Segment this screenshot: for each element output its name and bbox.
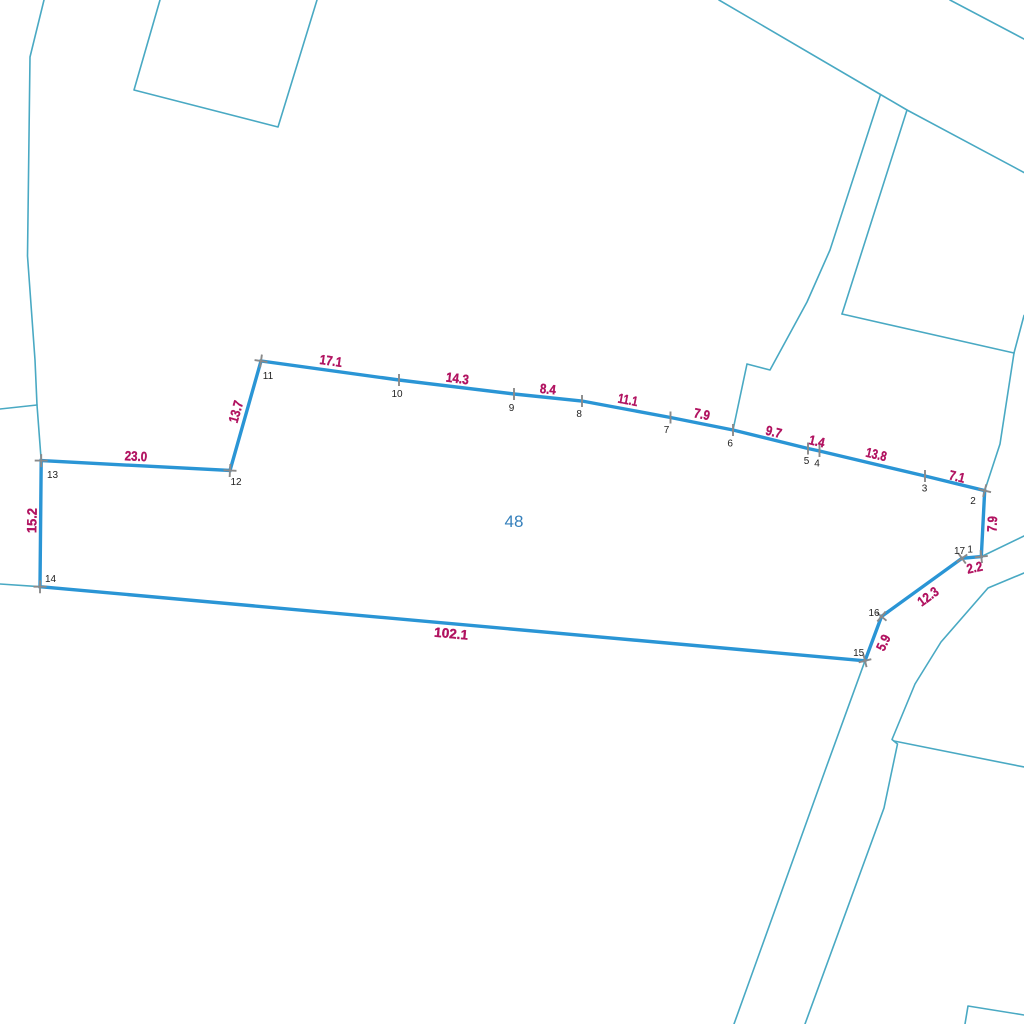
svg-text:8: 8	[576, 409, 582, 420]
svg-text:14: 14	[45, 574, 57, 585]
svg-text:102.1: 102.1	[434, 625, 470, 643]
svg-text:16: 16	[868, 608, 880, 619]
svg-text:8.4: 8.4	[539, 381, 557, 398]
svg-text:15.2: 15.2	[24, 508, 39, 533]
svg-text:17: 17	[954, 546, 966, 557]
svg-text:15: 15	[853, 648, 865, 659]
svg-text:17.1: 17.1	[319, 352, 344, 370]
svg-text:7.9: 7.9	[985, 516, 1001, 533]
svg-text:14.3: 14.3	[445, 370, 470, 388]
svg-text:12: 12	[230, 477, 242, 488]
svg-text:1: 1	[967, 545, 973, 556]
svg-text:7: 7	[664, 425, 670, 436]
svg-text:2: 2	[970, 496, 976, 507]
svg-text:48: 48	[505, 512, 524, 531]
svg-text:4: 4	[814, 459, 820, 470]
svg-text:6: 6	[727, 439, 733, 450]
svg-text:5: 5	[804, 456, 810, 467]
svg-text:10: 10	[391, 389, 403, 400]
svg-text:11: 11	[263, 371, 274, 382]
svg-text:23.0: 23.0	[124, 448, 147, 464]
svg-text:13: 13	[47, 470, 59, 481]
svg-text:9: 9	[509, 403, 515, 414]
svg-text:7.9: 7.9	[693, 405, 712, 423]
svg-text:3: 3	[922, 484, 928, 495]
